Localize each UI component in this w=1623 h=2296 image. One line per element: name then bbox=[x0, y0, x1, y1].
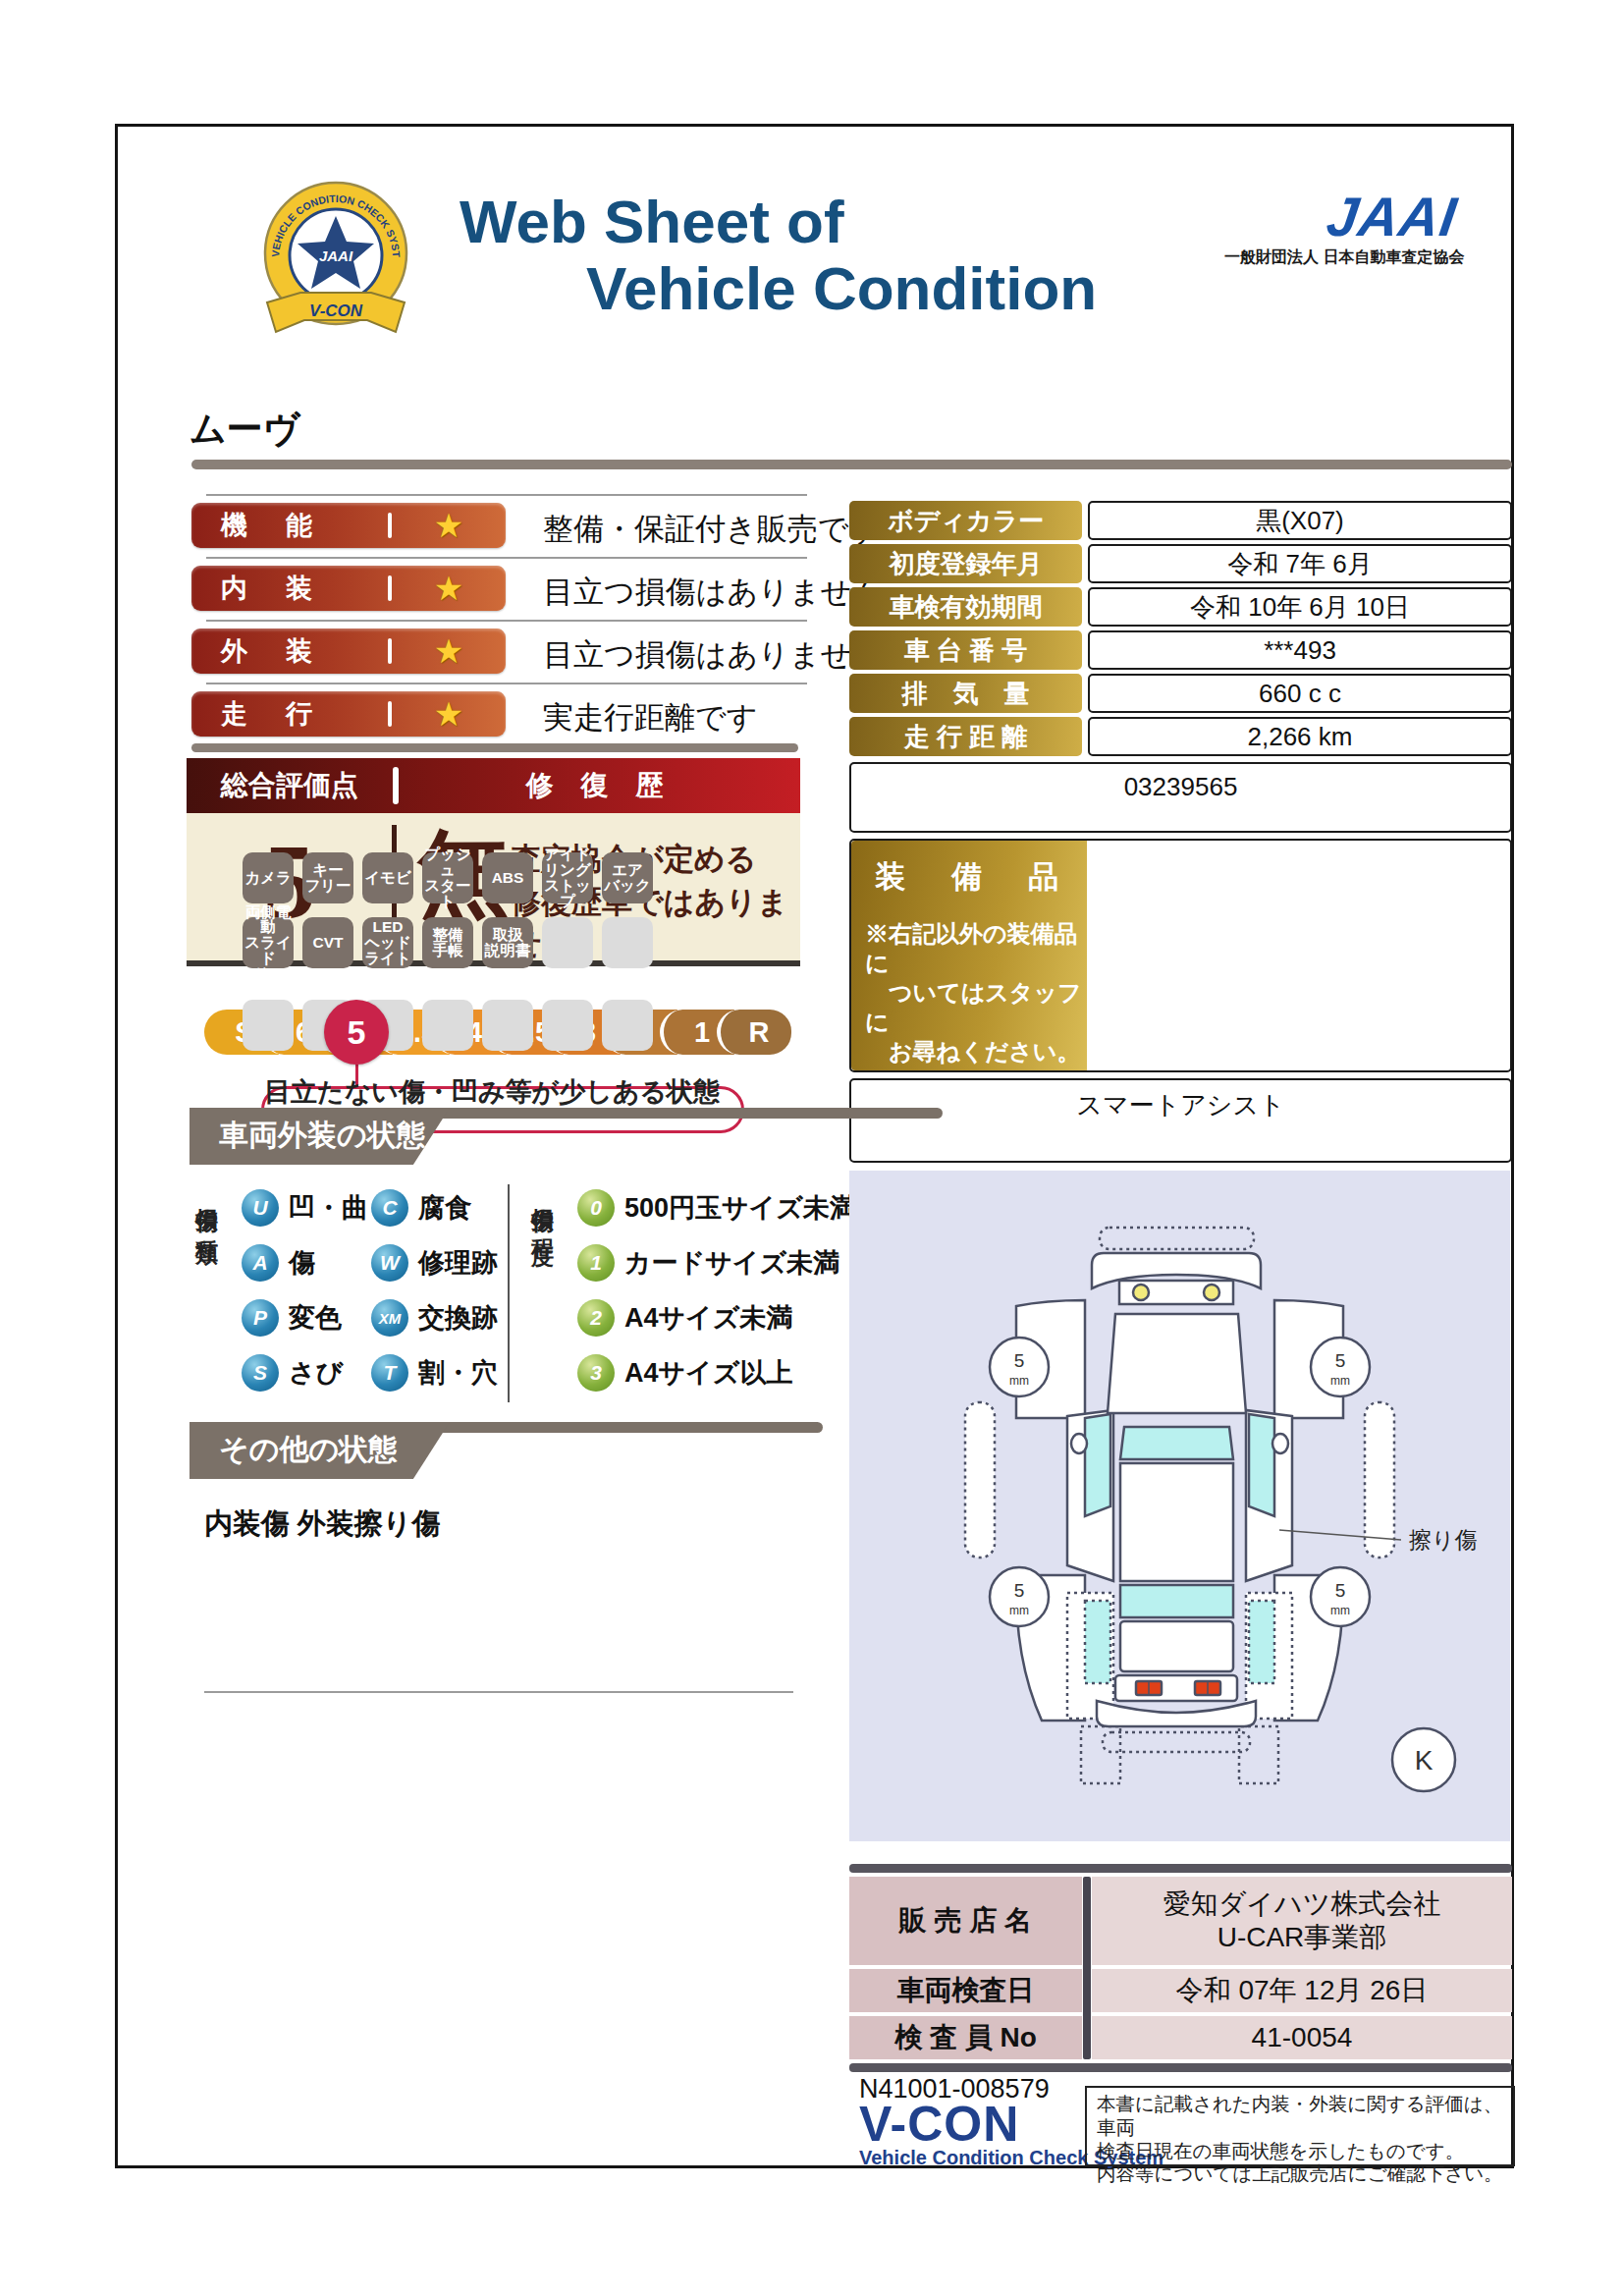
legend-degree-item: 3 A4サイズ以上 bbox=[577, 1354, 792, 1392]
rating-separator bbox=[206, 494, 807, 496]
equipment-badge: CVT bbox=[302, 917, 353, 968]
tire-tread-unit: mm bbox=[1009, 1374, 1029, 1388]
legend-kind-item: A 傷 bbox=[242, 1244, 315, 1282]
equipment-badge-empty bbox=[602, 1000, 653, 1051]
detail-value: 令和 7年 6月 bbox=[1088, 544, 1512, 583]
mirror bbox=[1071, 1434, 1087, 1453]
detail-label: 排 気 量 bbox=[849, 674, 1082, 713]
legend-kind-item: U 凹・曲 bbox=[242, 1189, 368, 1227]
tire-tread-value: 5 bbox=[1335, 1580, 1346, 1601]
dealer-row-inspector-no: 検 査 員 No 41-0054 bbox=[849, 2016, 1512, 2059]
equipment-badge: エア バック bbox=[602, 852, 653, 903]
star-icon: ★ bbox=[392, 631, 506, 671]
equipment-title: 装 備 品 bbox=[875, 856, 1066, 898]
legend-degree-item: 1 カードサイズ未満 bbox=[577, 1244, 839, 1282]
scale-seg-r: R bbox=[717, 1010, 791, 1055]
equipment-badge-empty bbox=[542, 917, 593, 968]
damage-code-icon: C bbox=[371, 1189, 408, 1227]
tire-tread-value: 5 bbox=[1335, 1350, 1346, 1371]
damage-code-icon: S bbox=[242, 1354, 279, 1392]
tire-tread-unit: mm bbox=[1330, 1604, 1350, 1617]
legend-kind-item: T 割・穴 bbox=[371, 1354, 498, 1392]
page-title-line2: Vehicle Condition bbox=[586, 253, 1097, 323]
jaai-org-name: 一般財団法人 日本自動車査定協会 bbox=[1224, 247, 1464, 268]
detail-label: ボディカラー bbox=[849, 501, 1082, 540]
tailgate bbox=[1120, 1621, 1233, 1671]
detail-row-displacement: 排 気 量 660 c c bbox=[849, 674, 1512, 713]
banner-title: その他の状態 bbox=[189, 1422, 450, 1479]
detail-label: 走 行 距 離 bbox=[849, 717, 1082, 756]
rating-row-mileage: 走 行 ★ bbox=[191, 691, 506, 737]
equipment-badges-row1: カメラ キー フリー イモビ プッシュ スタート ABS アイド リング ストッ… bbox=[243, 852, 653, 903]
dealer-table-bottom-bar bbox=[849, 2063, 1512, 2072]
serial-number-box: 03239565 bbox=[849, 762, 1512, 833]
detail-value: 黒(X07) bbox=[1088, 501, 1512, 540]
k-mark: K bbox=[1415, 1745, 1434, 1776]
vehicle-condition-sheet: VEHICLE CONDITION CHECK SYSTEM JAAI V-CO… bbox=[0, 0, 1623, 2296]
degree-text: 500円玉サイズ未満 bbox=[624, 1190, 856, 1226]
detail-value: ***493 bbox=[1088, 630, 1512, 670]
vcon-wordmark: V-CON bbox=[859, 2100, 1019, 2149]
rear-window bbox=[1120, 1585, 1233, 1617]
equipment-badge-empty bbox=[602, 917, 653, 968]
other-condition-banner: その他の状態 bbox=[189, 1422, 823, 1479]
damage-kind-text: 割・穴 bbox=[418, 1355, 498, 1391]
exterior-condition-banner: 車両外装の状態 bbox=[189, 1108, 943, 1165]
vehicle-name: ムーヴ bbox=[189, 405, 300, 454]
damage-code-icon: U bbox=[242, 1189, 279, 1227]
roof bbox=[1120, 1463, 1233, 1581]
equipment-badge-empty bbox=[422, 1000, 473, 1051]
rating-comment: 目立つ損傷はありません bbox=[543, 572, 883, 613]
page-title-line1: Web Sheet of bbox=[460, 187, 844, 256]
headlight-left-icon bbox=[1133, 1285, 1149, 1300]
tire-tread-value: 5 bbox=[1014, 1350, 1025, 1371]
overall-score-heading: 総合評価点 bbox=[187, 767, 393, 804]
rating-comment: 整備・保証付き販売です bbox=[543, 509, 880, 550]
damage-kind-label: 損傷の種類 bbox=[192, 1190, 223, 1226]
rating-label: 走 行 bbox=[191, 696, 388, 732]
equipment-badge: LED ヘッド ライト bbox=[362, 917, 413, 968]
legend-kind-item: C 腐食 bbox=[371, 1189, 471, 1227]
detail-row-inspection-validity: 車検有効期間 令和 10年 6月 10日 bbox=[849, 587, 1512, 627]
dealer-row-inspection-date: 車両検査日 令和 07年 12月 26日 bbox=[849, 1969, 1512, 2012]
damage-kind-text: 傷 bbox=[289, 1245, 315, 1281]
damage-code-icon: A bbox=[242, 1244, 279, 1282]
tire-tread-unit: mm bbox=[1009, 1604, 1029, 1617]
tire-tread-unit: mm bbox=[1330, 1374, 1350, 1388]
rating-label: 外 装 bbox=[191, 633, 388, 669]
dealer-value: 令和 07年 12月 26日 bbox=[1092, 1969, 1512, 2012]
detail-value: 660 c c bbox=[1088, 674, 1512, 713]
rating-label: 内 装 bbox=[191, 571, 388, 606]
equipment-badges-row3 bbox=[243, 1000, 653, 1051]
detail-value: 令和 10年 6月 10日 bbox=[1088, 587, 1512, 627]
detail-label: 初度登録年月 bbox=[849, 544, 1082, 583]
legend-degree-item: 0 500円玉サイズ未満 bbox=[577, 1189, 856, 1227]
equipment-box: 装 備 品 ※右記以外の装備品に ついてはスタッフに お尋ねください。 bbox=[849, 839, 1512, 1072]
hood bbox=[1108, 1314, 1246, 1413]
equipment-badge: カメラ bbox=[243, 852, 294, 903]
side-sill-outline bbox=[1365, 1402, 1394, 1558]
windshield bbox=[1120, 1427, 1233, 1459]
equipment-badge: イモビ bbox=[362, 852, 413, 903]
divider-bar-mid bbox=[191, 743, 798, 752]
equipment-badge: 取扱 説明書 bbox=[482, 917, 533, 968]
rating-separator bbox=[206, 557, 807, 559]
damage-kind-text: 腐食 bbox=[418, 1190, 471, 1226]
detail-label: 車検有効期間 bbox=[849, 587, 1082, 627]
dealer-value: 41-0054 bbox=[1092, 2016, 1512, 2059]
rating-separator bbox=[206, 620, 807, 622]
detail-label: 車 台 番 号 bbox=[849, 630, 1082, 670]
equipment-badge: キー フリー bbox=[302, 852, 353, 903]
degree-code-icon: 0 bbox=[577, 1189, 615, 1227]
rear-quarter-window bbox=[1249, 1601, 1274, 1683]
equipment-badge: アイド リング ストップ bbox=[542, 852, 593, 903]
dealer-label: 車両検査日 bbox=[849, 1969, 1082, 2012]
tire-tread-value: 5 bbox=[1014, 1580, 1025, 1601]
damage-kind-text: 変色 bbox=[289, 1300, 342, 1336]
legend-kind-item: S さび bbox=[242, 1354, 343, 1392]
damage-kind-text: さび bbox=[289, 1355, 343, 1391]
damage-code-icon: W bbox=[371, 1244, 408, 1282]
equipment-badge: ABS bbox=[482, 852, 533, 903]
degree-text: カードサイズ未満 bbox=[624, 1245, 839, 1281]
rating-row-function: 機 能 ★ bbox=[191, 503, 506, 548]
detail-row-mileage: 走 行 距 離 2,266 km bbox=[849, 717, 1512, 756]
equipment-badge: プッシュ スタート bbox=[422, 852, 473, 903]
detail-row-chassis-number: 車 台 番 号 ***493 bbox=[849, 630, 1512, 670]
equipment-gold-panel: 装 備 品 ※右記以外の装備品に ついてはスタッフに お尋ねください。 bbox=[851, 841, 1087, 1070]
legend-degree-item: 2 A4サイズ未満 bbox=[577, 1299, 792, 1337]
equipment-note: ※右記以外の装備品に ついてはスタッフに お尋ねください。 bbox=[865, 919, 1087, 1066]
rating-row-exterior: 外 装 ★ bbox=[191, 629, 506, 674]
dealer-table-top-bar bbox=[849, 1864, 1512, 1873]
dealer-row-name: 販 売 店 名 愛知ダイハツ株式会社 U-CAR事業部 bbox=[849, 1877, 1512, 1965]
side-sill-outline bbox=[965, 1402, 995, 1558]
car-damage-diagram: 5 mm 5 mm 5 mm 5 mm 擦り傷 K bbox=[849, 1171, 1510, 1841]
dealer-value: 愛知ダイハツ株式会社 U-CAR事業部 bbox=[1092, 1877, 1512, 1965]
detail-value: 2,266 km bbox=[1088, 717, 1512, 756]
equipment-badge: 整備 手帳 bbox=[422, 917, 473, 968]
other-condition-underline bbox=[204, 1691, 793, 1693]
legend-kind-item: XM 交換跡 bbox=[371, 1299, 498, 1337]
damage-kind-text: 修理跡 bbox=[418, 1245, 498, 1281]
degree-code-icon: 2 bbox=[577, 1299, 615, 1337]
dealer-table-divider bbox=[1083, 1877, 1091, 2059]
degree-text: A4サイズ以上 bbox=[624, 1355, 792, 1391]
rating-label: 機 能 bbox=[191, 508, 388, 543]
rating-row-interior: 内 装 ★ bbox=[191, 566, 506, 611]
detail-row-first-registration: 初度登録年月 令和 7年 6月 bbox=[849, 544, 1512, 583]
banner-title: 車両外装の状態 bbox=[189, 1108, 450, 1165]
rating-separator bbox=[206, 683, 807, 684]
equipment-badge-empty bbox=[243, 1000, 294, 1051]
emblem-center-text: JAAI bbox=[319, 247, 353, 264]
equipment-badge: 両側電動 スライド ドア bbox=[243, 917, 294, 968]
degree-text: A4サイズ未満 bbox=[624, 1300, 792, 1336]
rating-comment: 目立つ損傷はありません bbox=[543, 634, 883, 676]
rating-comment: 実走行距離です bbox=[543, 697, 757, 738]
star-icon: ★ bbox=[392, 694, 506, 734]
vcon-emblem: VEHICLE CONDITION CHECK SYSTEM JAAI V-CO… bbox=[257, 177, 414, 349]
jaai-logo: JAAI bbox=[1323, 185, 1461, 248]
damage-degree-label: 損傷の程度 bbox=[528, 1190, 559, 1226]
smart-assist-box: スマートアシスト bbox=[849, 1078, 1512, 1163]
star-icon: ★ bbox=[392, 506, 506, 545]
degree-code-icon: 1 bbox=[577, 1244, 615, 1282]
equipment-badge-empty bbox=[542, 1000, 593, 1051]
damage-code-icon: P bbox=[242, 1299, 279, 1337]
detail-row-bodycolor: ボディカラー 黒(X07) bbox=[849, 501, 1512, 540]
dealer-label: 販 売 店 名 bbox=[849, 1877, 1082, 1965]
mirror bbox=[1272, 1434, 1288, 1453]
repair-history-heading: 修 復 歴 bbox=[399, 767, 800, 804]
scratch-annotation: 擦り傷 bbox=[1409, 1527, 1478, 1553]
emblem-ribbon-text: V-CON bbox=[309, 301, 363, 320]
disclaimer-box: 本書に記載された内装・外装に関する評価は、車両 検査日現在の車両状態を示したもの… bbox=[1085, 2086, 1515, 2166]
front-door-window bbox=[1249, 1414, 1274, 1516]
rear-quarter-window bbox=[1085, 1601, 1110, 1683]
degree-code-icon: 3 bbox=[577, 1354, 615, 1392]
other-condition-text: 内装傷 外装擦り傷 bbox=[204, 1504, 441, 1544]
overall-header: 総合評価点 修 復 歴 bbox=[187, 758, 800, 813]
damage-code-icon: XM bbox=[371, 1299, 408, 1337]
headlight-right-icon bbox=[1204, 1285, 1219, 1300]
damage-kind-text: 交換跡 bbox=[418, 1300, 498, 1336]
damage-code-icon: T bbox=[371, 1354, 408, 1392]
dealer-label: 検 査 員 No bbox=[849, 2016, 1082, 2059]
divider-bar-top bbox=[191, 460, 1512, 469]
legend-divider bbox=[508, 1184, 510, 1402]
legend-kind-item: W 修理跡 bbox=[371, 1244, 498, 1282]
equipment-badges-row2: 両側電動 スライド ドア CVT LED ヘッド ライト 整備 手帳 取扱 説明… bbox=[243, 917, 653, 968]
star-icon: ★ bbox=[392, 569, 506, 608]
selected-score-marker: 5 bbox=[324, 1000, 389, 1065]
front-door-window bbox=[1085, 1414, 1110, 1516]
equipment-badge-empty bbox=[482, 1000, 533, 1051]
legend-kind-item: P 変色 bbox=[242, 1299, 342, 1337]
damage-kind-text: 凹・曲 bbox=[289, 1190, 368, 1226]
